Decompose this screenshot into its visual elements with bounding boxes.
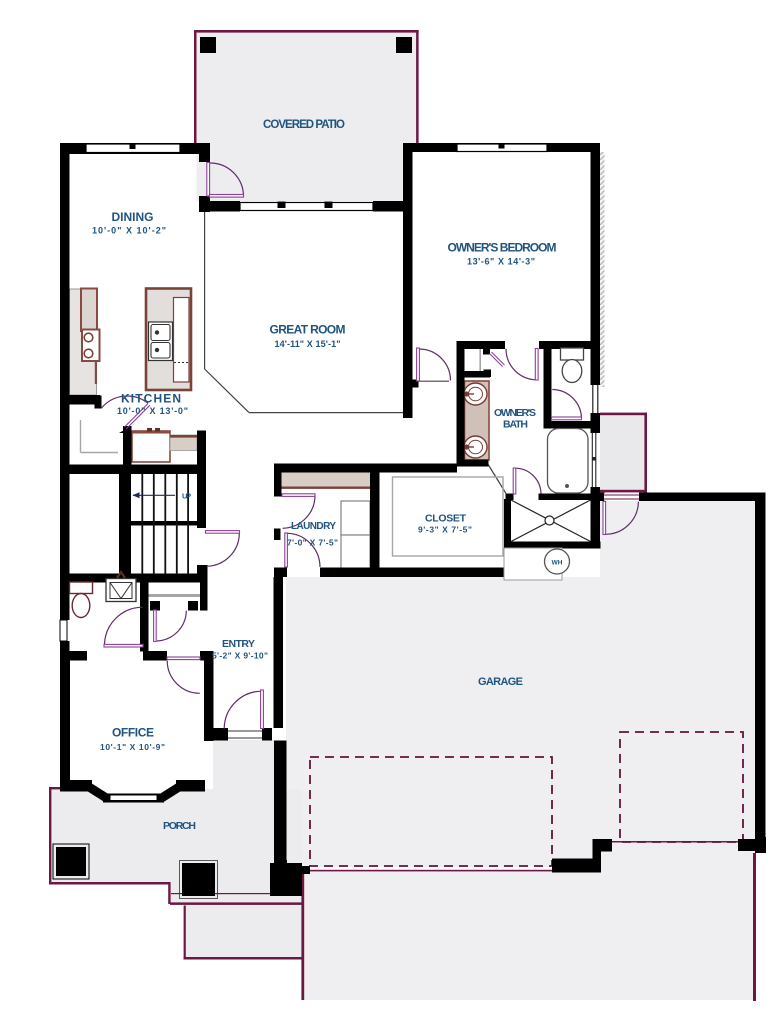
- svg-text:10'-0" X 10'-2": 10'-0" X 10'-2": [92, 226, 166, 236]
- svg-text:BATH: BATH: [503, 419, 528, 431]
- svg-text:PORCH: PORCH: [163, 820, 196, 832]
- svg-text:10'-1" X 10'-9": 10'-1" X 10'-9": [100, 742, 165, 752]
- svg-text:10'-0" X 13'-0": 10'-0" X 13'-0": [117, 406, 188, 416]
- svg-text:14'-11" X 15'-1": 14'-11" X 15'-1": [275, 339, 341, 349]
- svg-text:OFFICE: OFFICE: [112, 726, 154, 740]
- svg-text:GREAT ROOM: GREAT ROOM: [270, 323, 346, 337]
- svg-text:DINING: DINING: [112, 210, 154, 224]
- svg-text:9'-3" X 7'-5": 9'-3" X 7'-5": [418, 525, 472, 535]
- svg-text:KITCHEN: KITCHEN: [121, 392, 181, 406]
- svg-text:ENTRY: ENTRY: [222, 638, 255, 650]
- svg-text:UP: UP: [182, 492, 191, 501]
- svg-text:OWNER'S: OWNER'S: [494, 407, 536, 419]
- svg-text:13'-6" X 14'-3": 13'-6" X 14'-3": [467, 257, 535, 267]
- svg-text:CLOSET: CLOSET: [425, 513, 467, 525]
- svg-text:7'-0" X 7'-5": 7'-0" X 7'-5": [287, 538, 338, 548]
- svg-text:LAUNDRY: LAUNDRY: [291, 521, 336, 532]
- svg-text:WH: WH: [552, 560, 563, 567]
- svg-text:5'-2" X 9'-10": 5'-2" X 9'-10": [212, 651, 268, 661]
- svg-text:COVERED PATIO: COVERED PATIO: [263, 119, 345, 131]
- svg-text:OWNER'S BEDROOM: OWNER'S BEDROOM: [448, 241, 557, 255]
- svg-text:GARAGE: GARAGE: [478, 676, 523, 688]
